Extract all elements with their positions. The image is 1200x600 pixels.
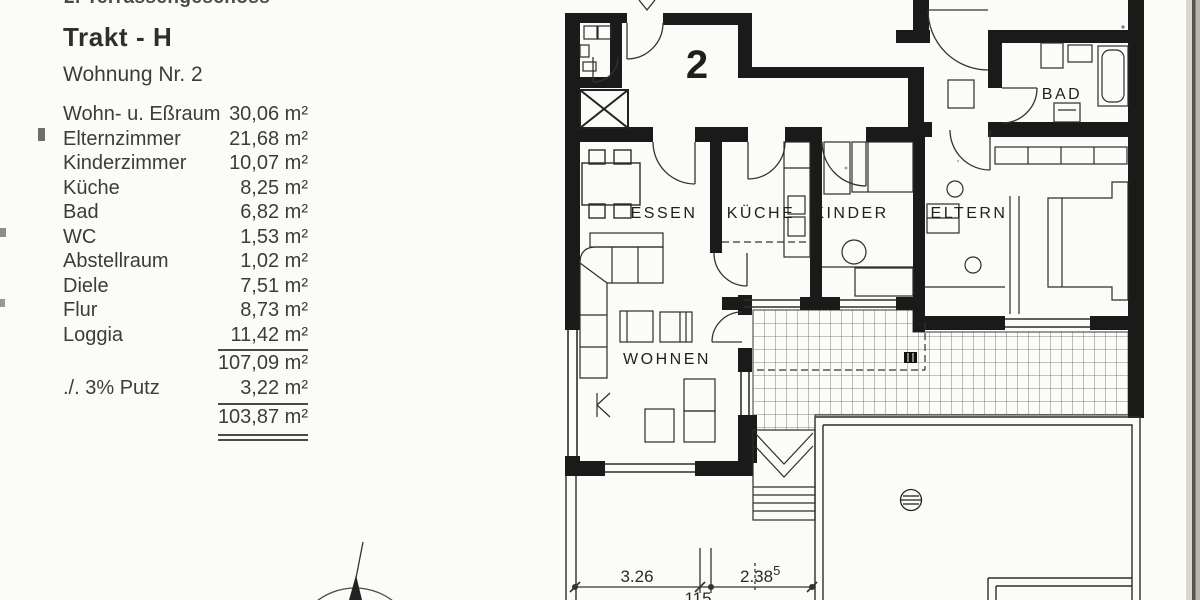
room-label-kinder: KINDER [813, 205, 888, 222]
shaft-cross-icon [580, 90, 628, 128]
room-label-essen: ESSEN [631, 205, 698, 222]
dimension-c: 115 [684, 589, 711, 600]
window-opening-symbol [597, 393, 610, 417]
apartment-number-label: 2 [686, 43, 708, 87]
scanned-floorplan-page: 2. Terrassengeschoss Trakt - H Wohnung N… [0, 0, 1200, 600]
round-drain-icon [901, 490, 922, 511]
room-label-kueche: KÜCHE [727, 204, 796, 222]
page-edge [1186, 0, 1200, 600]
dimension-a: 3.26 [620, 567, 653, 586]
room-label-wohnen: WOHNEN [623, 351, 711, 368]
scan-speckles [0, 25, 1125, 307]
sofa-group [580, 233, 715, 442]
wc-fixtures [580, 26, 611, 71]
compass-north-arrow-icon [293, 542, 417, 600]
exterior-stairs [753, 430, 815, 520]
room-label-bad: BAD [1042, 86, 1082, 103]
bathroom-fixtures [948, 43, 1128, 122]
dimension-b: 2.385 [740, 563, 780, 586]
entrance-marker-icon [639, 0, 655, 10]
gutter-drain-icon [904, 352, 917, 363]
dimension-b-superscript: 5 [773, 563, 780, 578]
room-label-eltern: ELTERN [931, 205, 1008, 222]
kitchen-counter [784, 142, 810, 257]
parents-room-furniture [925, 147, 1128, 314]
floor-plan-drawing: ESSEN KÜCHE KINDER ELTERN BAD WOHNEN 2 3… [0, 0, 1200, 600]
